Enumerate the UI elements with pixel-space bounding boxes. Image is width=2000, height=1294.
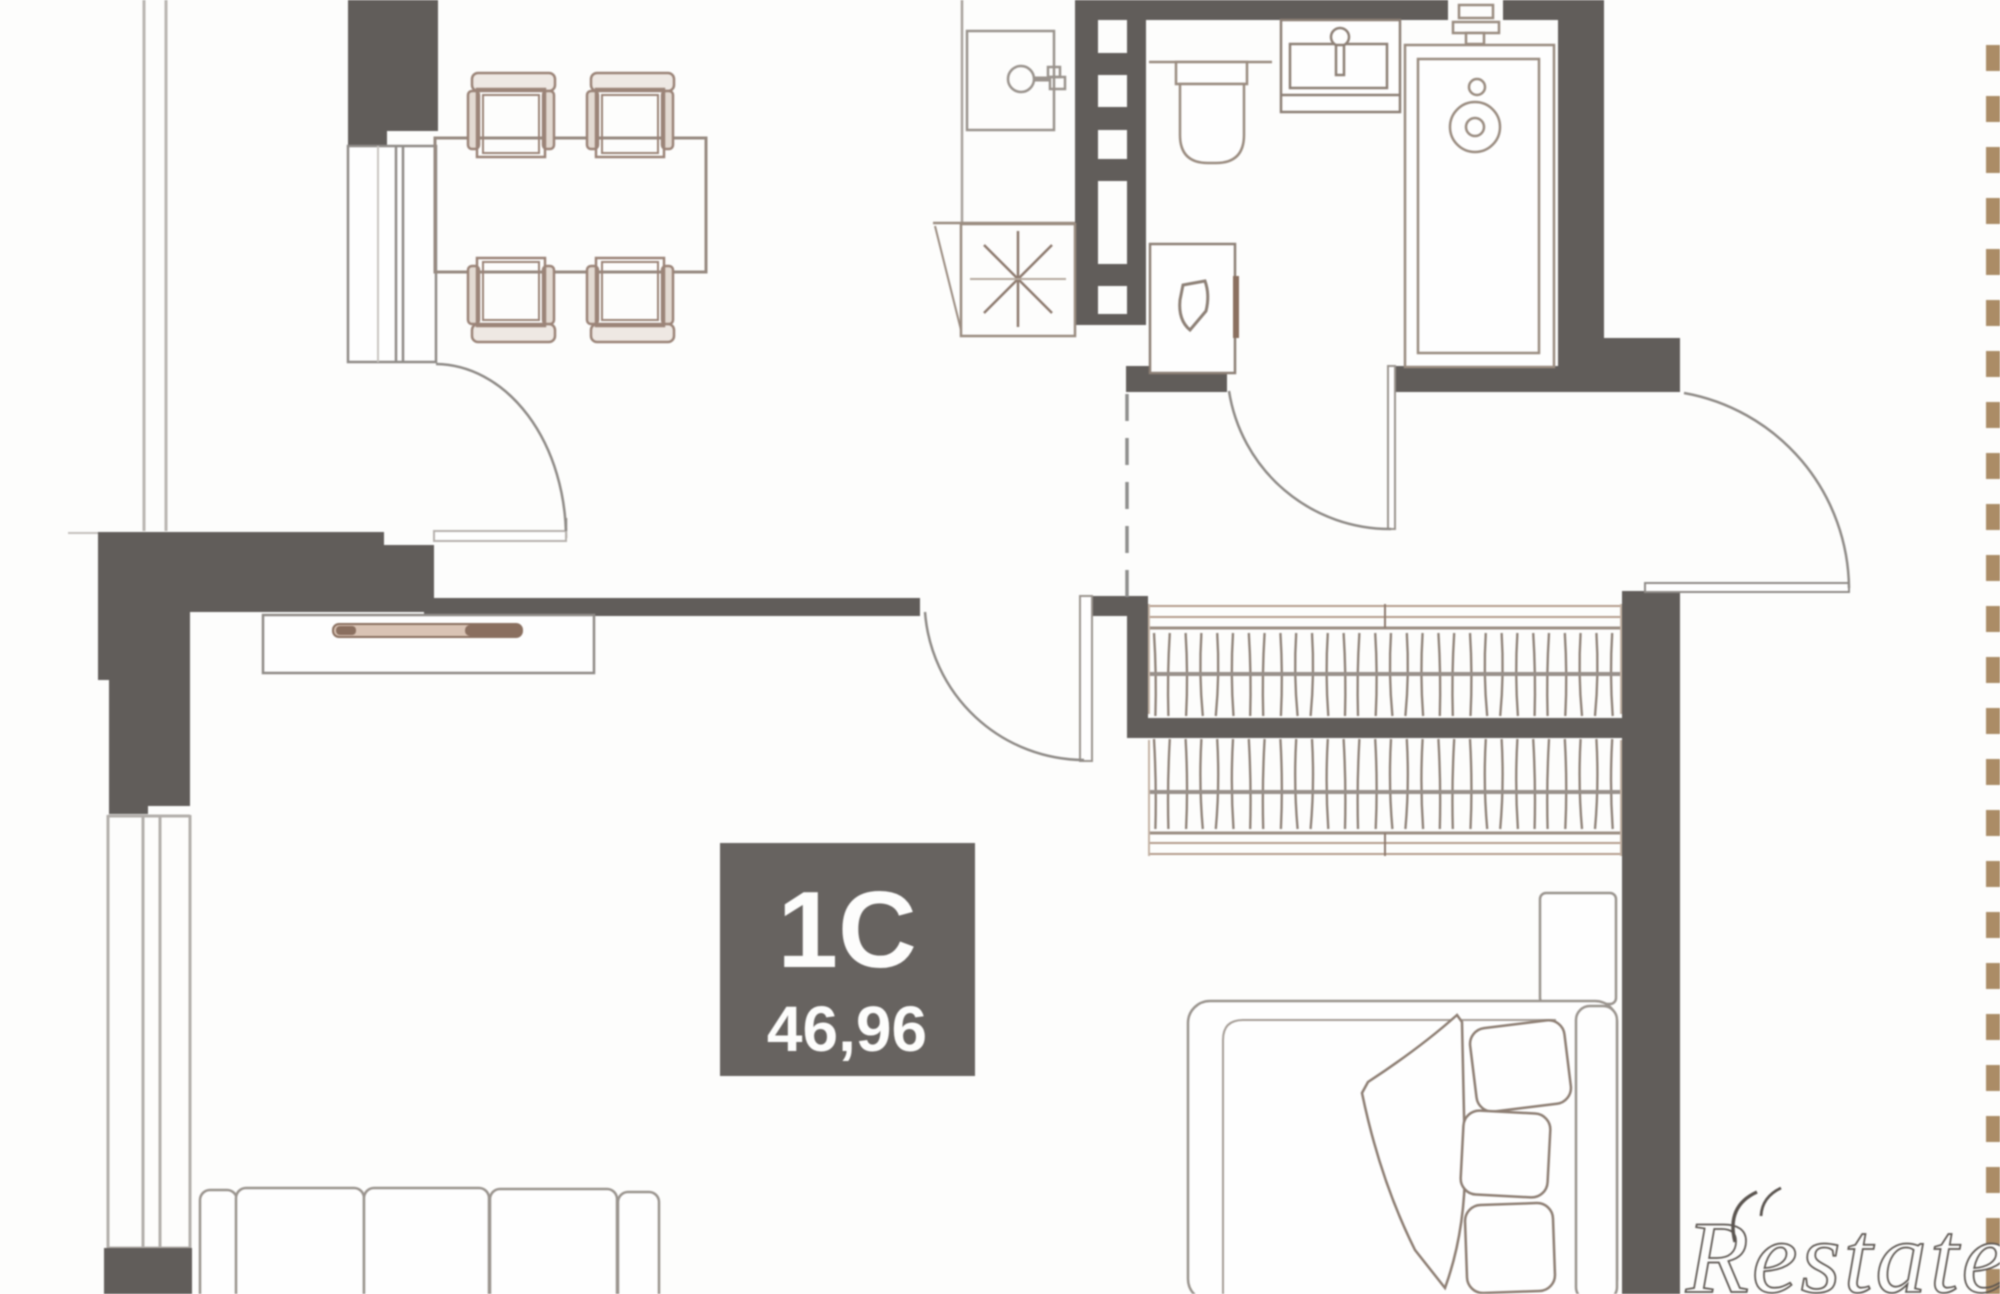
svg-text:Restate: Restate bbox=[1685, 1201, 2000, 1294]
svg-text:1C: 1C bbox=[777, 869, 916, 991]
svg-text:46,96: 46,96 bbox=[767, 993, 927, 1065]
